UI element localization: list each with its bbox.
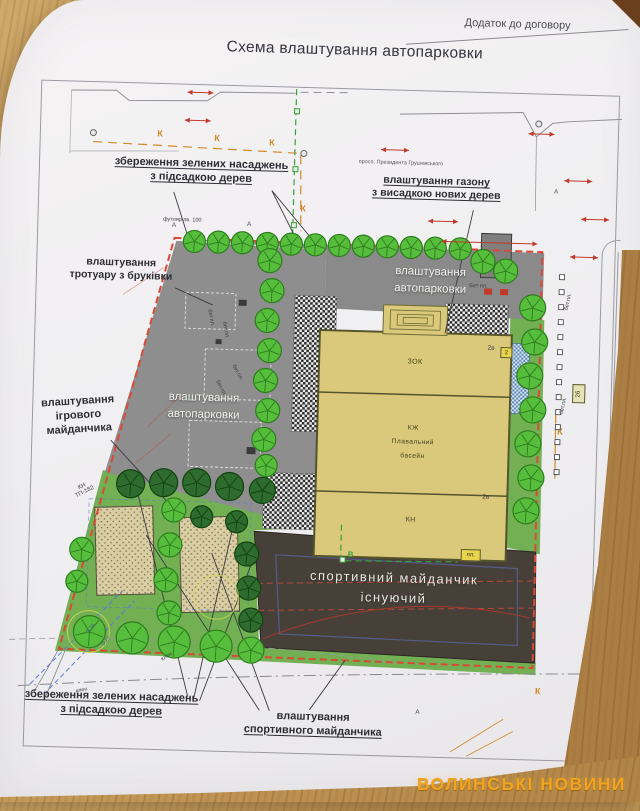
dimension-arrow-icon <box>570 254 598 260</box>
new-tree-icon <box>352 235 375 258</box>
new-tree-icon <box>449 238 472 261</box>
fence-mark-icon <box>557 380 562 385</box>
dimension-arrow-icon <box>528 131 554 137</box>
new-tree-icon <box>424 237 447 260</box>
utility-letter: К <box>269 137 275 147</box>
fence-mark-icon <box>554 455 559 460</box>
sand-playground-1 <box>95 506 155 595</box>
dimension-arrow-icon <box>564 178 592 184</box>
utility-letter: А <box>247 221 252 228</box>
utility-letter: К <box>300 203 306 213</box>
new-tree-icon <box>158 626 191 659</box>
existing-tree-icon <box>215 472 244 501</box>
new-tree-icon <box>157 601 182 626</box>
drawing-sheet: ККККККААААВ Додаток до договору Схема вл… <box>0 0 640 811</box>
utility-letter: В <box>348 550 354 559</box>
new-tree-icon <box>162 498 187 523</box>
existing-tree-icon <box>234 542 259 567</box>
new-tree-icon <box>518 465 545 492</box>
new-tree-icon <box>66 570 89 593</box>
new-tree-icon <box>280 233 303 256</box>
fence-mark-icon <box>554 470 559 475</box>
fence-mark-icon <box>556 395 561 400</box>
new-tree-icon <box>400 236 423 259</box>
new-tree-icon <box>519 295 546 322</box>
bet-pl-5: Бет пл. <box>469 283 487 290</box>
dimension-arrow-icon <box>187 90 213 96</box>
futlyar-label: футляр пв. 100 <box>163 217 202 224</box>
new-tree-icon <box>328 234 351 257</box>
utility-letter: К <box>157 128 163 138</box>
green-utility-marker <box>340 557 345 562</box>
callout-sport-new: влаштування спортивного майданчика <box>224 708 403 740</box>
new-tree-icon <box>200 630 233 663</box>
new-tree-icon <box>255 454 278 477</box>
new-tree-icon <box>260 278 285 303</box>
tag-pl: пл. <box>461 549 481 562</box>
photo-of-site-plan: { "doc": { "appendix": "Додаток до догов… <box>0 0 640 802</box>
new-tree-icon <box>253 368 278 393</box>
callout-playground: влаштування ігрового майданчика <box>31 393 125 440</box>
green-utility-marker <box>291 223 296 228</box>
fence-mark-icon <box>555 425 560 430</box>
parking-upper-label: влаштування автопарковки <box>355 262 506 301</box>
utility-node-icon <box>536 121 542 127</box>
new-tree-icon <box>304 234 327 257</box>
tag-2: 2 <box>500 347 512 358</box>
floor-tag-2: 2в <box>482 494 489 501</box>
new-tree-icon <box>519 397 546 424</box>
new-tree-icon <box>207 231 230 254</box>
utility-letter: К <box>214 133 220 143</box>
utility-node-icon <box>301 150 307 156</box>
new-tree-icon <box>158 533 183 558</box>
news-watermark: ВОЛИНСЬКІ НОВИНИ <box>417 774 626 795</box>
utility-letter: К <box>535 686 541 696</box>
new-tree-icon <box>183 230 206 253</box>
fence-mark-icon <box>558 335 563 340</box>
existing-tree-icon <box>190 505 213 528</box>
fence-mark-icon <box>555 440 560 445</box>
fence-mark-icon <box>557 350 562 355</box>
new-tree-icon <box>231 231 254 254</box>
callout-lawn: влаштування газону з висадкою нових дере… <box>349 173 525 204</box>
fence-mark-icon <box>558 320 563 325</box>
callout-preserve-bottom: збереження зелених насаджень з підсадкою… <box>15 688 208 721</box>
existing-tree-icon <box>182 468 211 497</box>
green-utility-marker <box>294 109 299 114</box>
fence-mark-icon <box>559 275 564 280</box>
existing-tree-icon <box>149 468 178 497</box>
existing-tree-icon <box>238 608 263 633</box>
dimension-arrow-icon <box>381 147 409 153</box>
sport-existing-label: спортивний майданчик існуючий <box>252 564 535 611</box>
new-tree-icon <box>69 537 94 562</box>
new-tree-icon <box>516 362 543 389</box>
dimension-arrow-icon <box>581 217 609 223</box>
tag-2b: 2б <box>572 384 586 403</box>
callout-preserve-top: збереження зелених насаджень з підсадкою… <box>101 155 302 188</box>
dimension-arrow-icon <box>428 218 458 224</box>
new-tree-icon <box>521 329 548 356</box>
existing-tree-icon <box>116 469 145 498</box>
existing-tree-icon <box>225 510 248 533</box>
utility-node-icon <box>90 129 96 135</box>
existing-tree-icon <box>249 477 276 504</box>
new-tree-icon <box>376 236 399 259</box>
new-tree-icon <box>116 621 149 654</box>
new-tree-icon <box>258 248 283 273</box>
new-tree-icon <box>255 308 280 333</box>
parking-left-label: влаштування автопарковки <box>147 388 260 426</box>
new-tree-icon <box>252 427 277 452</box>
new-tree-icon <box>514 430 541 457</box>
callout-sidewalk: влаштування тротуару з бруківки <box>58 255 184 285</box>
dimension-arrow-icon <box>185 118 211 124</box>
new-tree-icon <box>154 567 179 592</box>
new-tree-icon <box>513 497 540 524</box>
utility-letter: А <box>554 188 559 195</box>
new-tree-icon <box>238 637 265 664</box>
fence-mark-icon <box>557 365 562 370</box>
fence-mark-icon <box>559 290 564 295</box>
utility-letter: А <box>415 709 420 716</box>
new-tree-icon <box>257 338 282 363</box>
floor-tag-1: 2в <box>487 345 494 352</box>
